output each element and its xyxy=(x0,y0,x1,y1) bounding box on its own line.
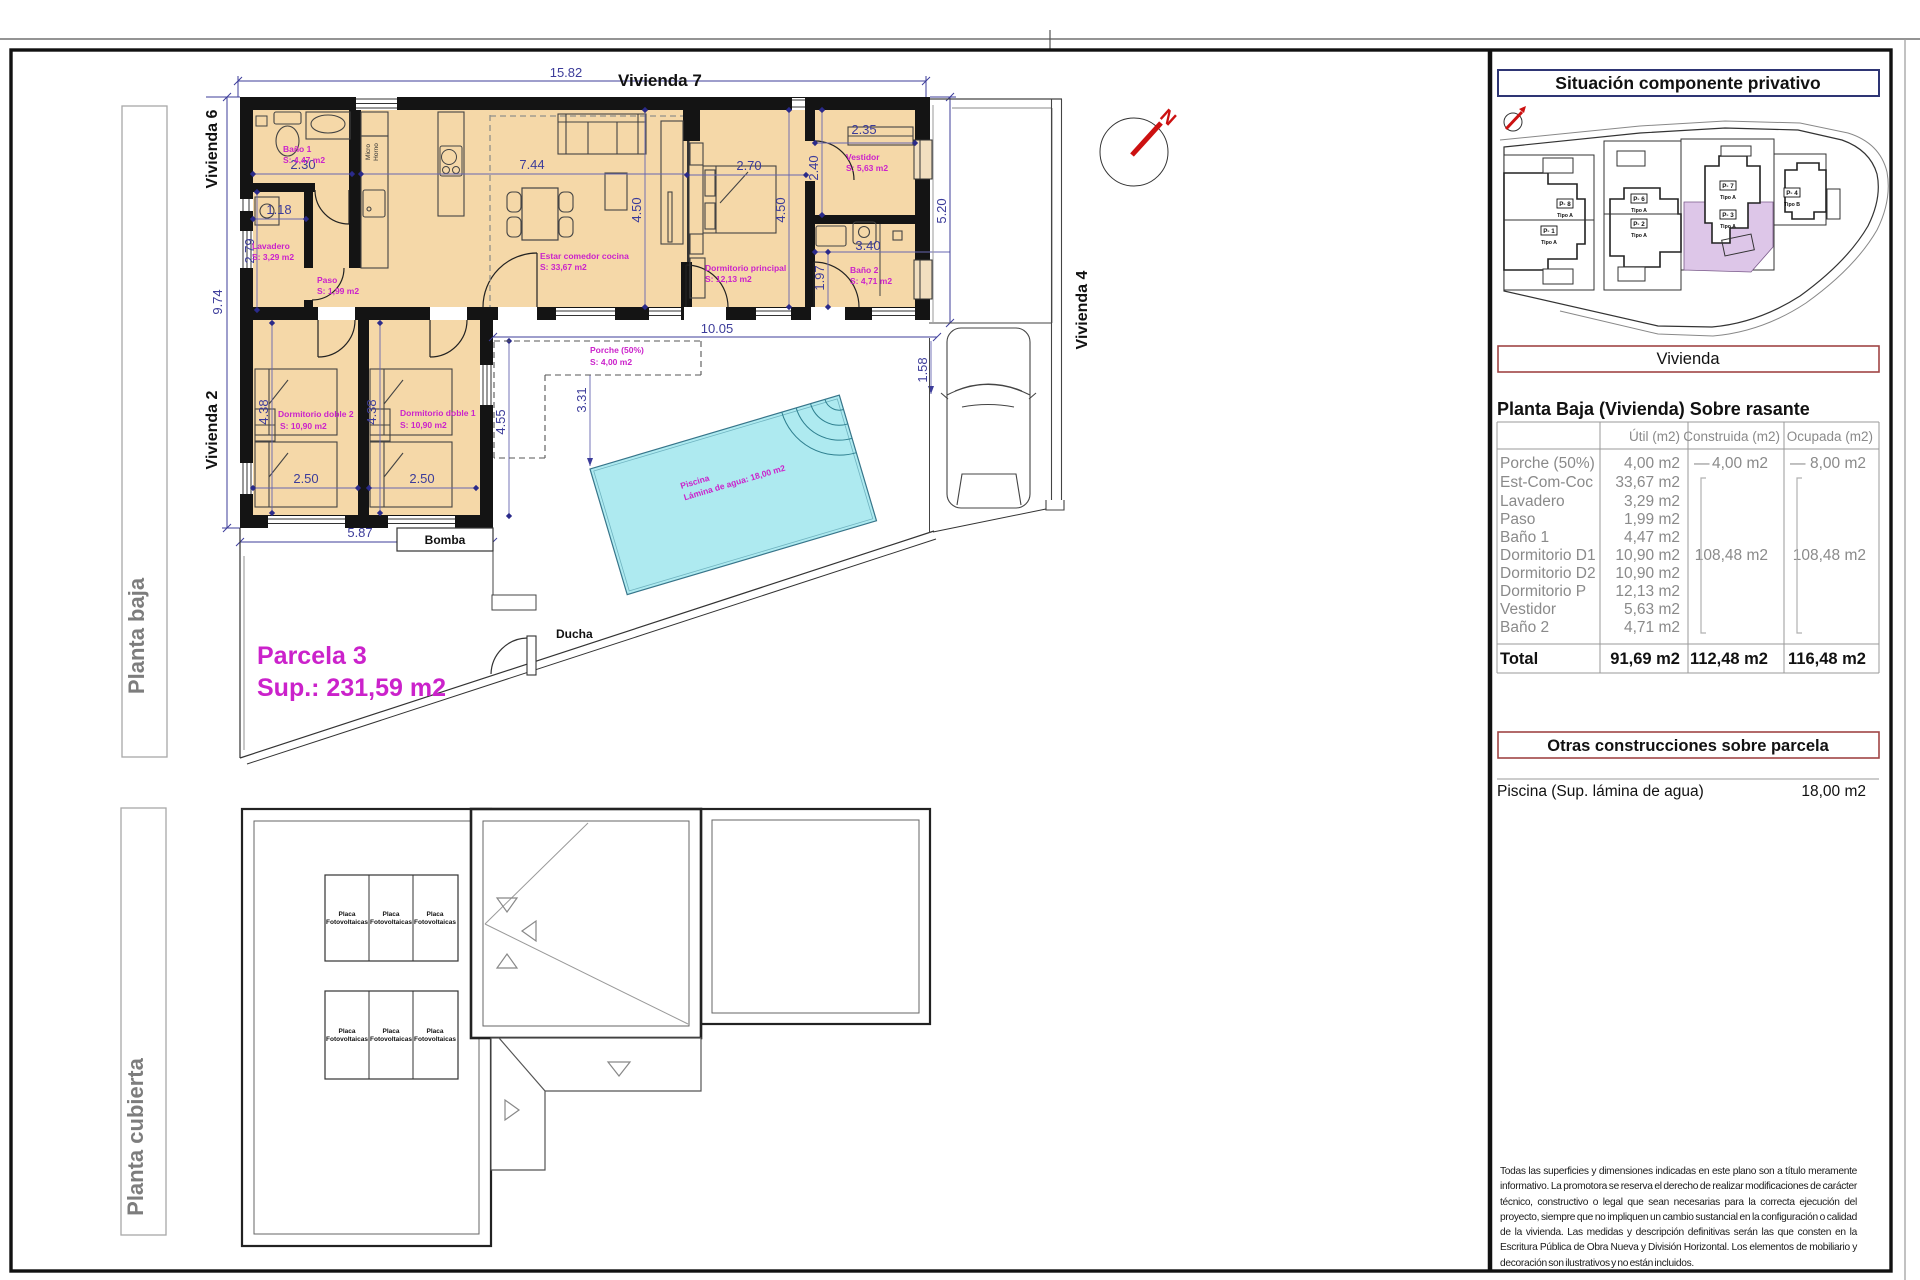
svg-text:Fotovoltaicas: Fotovoltaicas xyxy=(370,919,412,926)
svg-text:4.55: 4.55 xyxy=(493,409,508,434)
svg-text:Construida (m2): Construida (m2) xyxy=(1683,429,1780,444)
svg-text:116,48 m2: 116,48 m2 xyxy=(1788,650,1866,668)
svg-text:Ducha: Ducha xyxy=(556,627,593,641)
svg-text:8,00 m2: 8,00 m2 xyxy=(1810,455,1866,472)
svg-text:Paso: Paso xyxy=(1500,511,1535,528)
svg-text:Dormitorio P: Dormitorio P xyxy=(1500,583,1586,600)
svg-text:3,29 m2: 3,29 m2 xyxy=(1624,493,1680,510)
svg-text:1.18: 1.18 xyxy=(266,202,291,217)
svg-text:Baño 1: Baño 1 xyxy=(1500,529,1549,546)
svg-text:Dormitorio principal: Dormitorio principal xyxy=(705,263,786,273)
svg-text:Placa: Placa xyxy=(427,911,444,918)
svg-text:Baño 1: Baño 1 xyxy=(283,144,312,154)
svg-text:108,48 m2: 108,48 m2 xyxy=(1695,547,1768,564)
svg-text:4.50: 4.50 xyxy=(629,197,644,222)
svg-text:2.50: 2.50 xyxy=(409,471,434,486)
svg-text:Porche (50%): Porche (50%) xyxy=(590,345,644,355)
svg-text:S: 4,71 m2: S: 4,71 m2 xyxy=(850,276,892,286)
svg-text:S: 10,90 m2: S: 10,90 m2 xyxy=(400,420,447,430)
svg-text:108,48 m2: 108,48 m2 xyxy=(1793,547,1866,564)
svg-text:Estar comedor cocina: Estar comedor cocina xyxy=(540,251,629,261)
svg-text:Tipo A: Tipo A xyxy=(1631,208,1647,214)
svg-text:10.05: 10.05 xyxy=(701,321,734,336)
svg-text:S: 10,90 m2: S: 10,90 m2 xyxy=(280,421,327,431)
svg-text:Vivienda: Vivienda xyxy=(1657,350,1721,368)
svg-text:Placa: Placa xyxy=(339,911,356,918)
svg-text:4,00 m2: 4,00 m2 xyxy=(1624,455,1680,472)
svg-text:P- 4: P- 4 xyxy=(1786,190,1798,197)
svg-text:Bomba: Bomba xyxy=(425,533,466,547)
svg-text:Fotovoltaicas: Fotovoltaicas xyxy=(326,1036,368,1043)
svg-text:Micro: Micro xyxy=(365,144,372,160)
svg-text:2.35: 2.35 xyxy=(851,122,876,137)
svg-text:Tipo A: Tipo A xyxy=(1631,233,1647,239)
svg-text:Lavadero: Lavadero xyxy=(1500,493,1565,510)
svg-text:Planta Baja (Vivienda) Sobre r: Planta Baja (Vivienda) Sobre rasante xyxy=(1497,399,1810,419)
svg-text:Baño 2: Baño 2 xyxy=(850,265,879,275)
svg-text:Placa: Placa xyxy=(427,1028,444,1035)
svg-text:4.50: 4.50 xyxy=(773,197,788,222)
svg-text:3.31: 3.31 xyxy=(574,387,589,412)
svg-text:Ocupada (m2): Ocupada (m2) xyxy=(1787,429,1873,444)
svg-text:Piscina (Sup. lámina de agua): Piscina (Sup. lámina de agua) xyxy=(1497,783,1704,800)
svg-text:15.82: 15.82 xyxy=(550,65,583,80)
svg-text:4,71 m2: 4,71 m2 xyxy=(1624,619,1680,636)
svg-text:Vivienda 2: Vivienda 2 xyxy=(204,390,221,469)
svg-text:Otras construcciones sobre par: Otras construcciones sobre parcela xyxy=(1547,737,1829,755)
svg-text:Lavadero: Lavadero xyxy=(252,241,290,251)
svg-text:Fotovoltaicas: Fotovoltaicas xyxy=(414,1036,456,1043)
svg-text:Vivienda 6: Vivienda 6 xyxy=(204,109,221,188)
svg-text:Placa: Placa xyxy=(383,1028,400,1035)
svg-text:Vivienda 7: Vivienda 7 xyxy=(618,71,702,90)
svg-text:Tipo A: Tipo A xyxy=(1720,195,1736,201)
svg-text:Parcela 3: Parcela 3 xyxy=(257,642,367,670)
svg-text:4,00 m2: 4,00 m2 xyxy=(1712,455,1768,472)
svg-text:3.40: 3.40 xyxy=(855,238,880,253)
svg-text:Dormitorio doble 1: Dormitorio doble 1 xyxy=(400,408,476,418)
svg-text:5,63 m2: 5,63 m2 xyxy=(1624,601,1680,618)
svg-text:4,47 m2: 4,47 m2 xyxy=(1624,529,1680,546)
svg-text:4.38: 4.38 xyxy=(364,399,379,424)
svg-text:10,90 m2: 10,90 m2 xyxy=(1615,565,1680,582)
svg-text:Situación componente privativo: Situación componente privativo xyxy=(1555,73,1820,93)
svg-text:2.50: 2.50 xyxy=(293,471,318,486)
svg-text:—: — xyxy=(1694,455,1710,472)
svg-text:Fotovoltaicas: Fotovoltaicas xyxy=(326,919,368,926)
svg-text:Sup.: 231,59 m2: Sup.: 231,59 m2 xyxy=(257,674,446,702)
svg-text:P- 8: P- 8 xyxy=(1559,201,1571,208)
svg-text:Horno: Horno xyxy=(373,143,380,161)
svg-text:Fotovoltaicas: Fotovoltaicas xyxy=(414,919,456,926)
svg-text:Dormitorio D1: Dormitorio D1 xyxy=(1500,547,1596,564)
svg-text:91,69 m2: 91,69 m2 xyxy=(1610,650,1680,668)
svg-text:4.38: 4.38 xyxy=(256,399,271,424)
svg-text:P- 1: P- 1 xyxy=(1543,228,1555,235)
svg-text:33,67 m2: 33,67 m2 xyxy=(1615,474,1680,491)
svg-text:1.97: 1.97 xyxy=(812,265,827,290)
svg-text:P- 6: P- 6 xyxy=(1633,196,1645,203)
svg-text:S: 1,99 m2: S: 1,99 m2 xyxy=(317,286,359,296)
svg-text:P- 7: P- 7 xyxy=(1722,183,1734,190)
svg-text:Paso: Paso xyxy=(317,275,337,285)
svg-text:S: 33,67 m2: S: 33,67 m2 xyxy=(540,262,587,272)
svg-text:112,48 m2: 112,48 m2 xyxy=(1690,650,1768,668)
svg-text:Porche (50%): Porche (50%) xyxy=(1500,455,1595,472)
svg-text:5.87: 5.87 xyxy=(347,525,372,540)
svg-text:Vivienda 4: Vivienda 4 xyxy=(1074,270,1091,349)
svg-text:Vestidor: Vestidor xyxy=(846,152,880,162)
svg-text:P- 2: P- 2 xyxy=(1633,221,1645,228)
svg-text:7.44: 7.44 xyxy=(519,157,544,172)
svg-text:2.70: 2.70 xyxy=(736,158,761,173)
svg-text:12,13 m2: 12,13 m2 xyxy=(1615,583,1680,600)
svg-text:9.74: 9.74 xyxy=(210,289,225,314)
svg-text:Tipo B: Tipo B xyxy=(1784,202,1800,208)
svg-text:Planta baja: Planta baja xyxy=(124,577,149,694)
svg-text:Tipo A: Tipo A xyxy=(1720,224,1736,230)
svg-text:Planta cubierta: Planta cubierta xyxy=(123,1057,148,1215)
svg-text:Baño 2: Baño 2 xyxy=(1500,619,1549,636)
svg-text:1.58: 1.58 xyxy=(915,357,930,382)
svg-text:Total: Total xyxy=(1500,650,1538,668)
svg-text:S: 12,13 m2: S: 12,13 m2 xyxy=(705,274,752,284)
svg-text:Tipo A: Tipo A xyxy=(1557,213,1573,219)
svg-text:Est-Com-Coc: Est-Com-Coc xyxy=(1500,474,1593,491)
svg-text:5.20: 5.20 xyxy=(934,198,949,223)
svg-text:Vestidor: Vestidor xyxy=(1500,601,1556,618)
svg-text:Dormitorio doble 2: Dormitorio doble 2 xyxy=(278,409,354,419)
svg-text:10,90 m2: 10,90 m2 xyxy=(1615,547,1680,564)
svg-text:—: — xyxy=(1790,455,1806,472)
svg-text:Dormitorio D2: Dormitorio D2 xyxy=(1500,565,1596,582)
svg-text:P- 3: P- 3 xyxy=(1722,212,1734,219)
svg-text:18,00 m2: 18,00 m2 xyxy=(1801,783,1866,800)
svg-text:Fotovoltaicas: Fotovoltaicas xyxy=(370,1036,412,1043)
svg-text:S: 3,29 m2: S: 3,29 m2 xyxy=(252,252,294,262)
svg-text:S: 4,47 m2: S: 4,47 m2 xyxy=(283,155,325,165)
svg-text:Placa: Placa xyxy=(383,911,400,918)
svg-text:S: 4,00 m2: S: 4,00 m2 xyxy=(590,357,632,367)
svg-text:1,99 m2: 1,99 m2 xyxy=(1624,511,1680,528)
svg-text:S: 5,63 m2: S: 5,63 m2 xyxy=(846,163,888,173)
svg-text:Tipo A: Tipo A xyxy=(1541,240,1557,246)
svg-text:Placa: Placa xyxy=(339,1028,356,1035)
svg-text:Útil (m2): Útil (m2) xyxy=(1629,429,1680,444)
svg-text:2.40: 2.40 xyxy=(806,155,821,180)
